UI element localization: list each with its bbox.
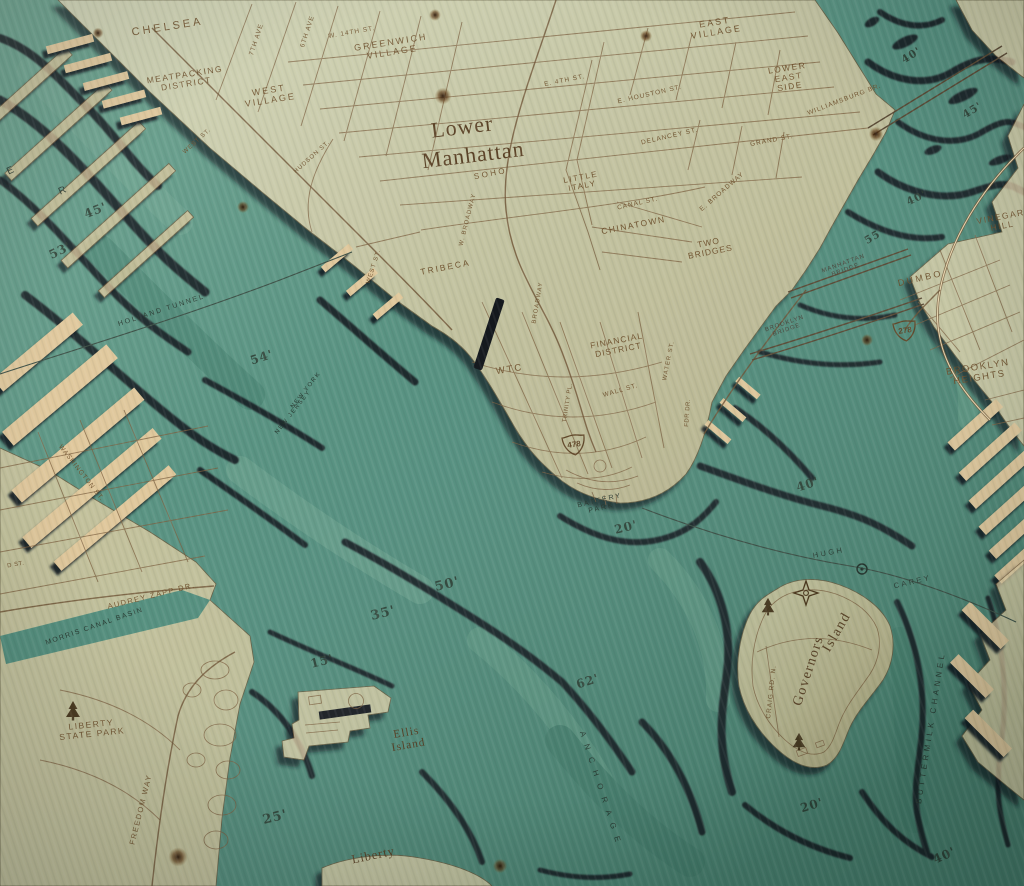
wood-map-photo: 478278 CHELSEA7TH AVE6TH AVEW. 14TH ST.G… (0, 0, 1024, 886)
vignette-overlay (0, 0, 1024, 886)
map-canvas: 478278 CHELSEA7TH AVE6TH AVEW. 14TH ST.G… (0, 0, 1024, 886)
